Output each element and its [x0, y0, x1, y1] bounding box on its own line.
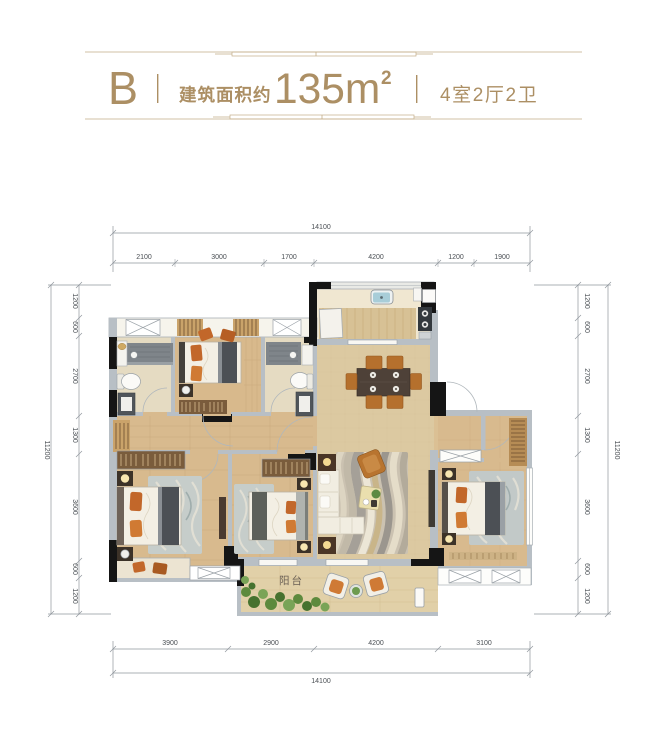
- svg-text:3000: 3000: [211, 254, 227, 261]
- svg-text:600: 600: [71, 321, 78, 333]
- svg-text:4室2厅2卫: 4室2厅2卫: [440, 84, 538, 106]
- svg-text:4200: 4200: [368, 640, 384, 647]
- svg-text:阳台: 阳台: [279, 574, 304, 587]
- svg-text:1900: 1900: [494, 254, 510, 261]
- svg-text:B: B: [108, 62, 138, 114]
- svg-text:1700: 1700: [281, 254, 297, 261]
- svg-text:1200: 1200: [71, 588, 78, 604]
- svg-text:11200: 11200: [43, 441, 50, 460]
- svg-text:600: 600: [583, 321, 590, 333]
- svg-text:2900: 2900: [263, 640, 279, 647]
- svg-text:135m: 135m: [274, 66, 380, 113]
- svg-text:建筑面积约: 建筑面积约: [179, 85, 272, 105]
- svg-text:14100: 14100: [311, 224, 331, 231]
- svg-text:2: 2: [381, 68, 392, 89]
- svg-text:1300: 1300: [71, 427, 78, 443]
- svg-text:3100: 3100: [476, 640, 492, 647]
- svg-text:600: 600: [583, 563, 590, 575]
- svg-text:3900: 3900: [162, 640, 178, 647]
- svg-text:2700: 2700: [583, 368, 590, 384]
- svg-text:3600: 3600: [71, 499, 78, 515]
- svg-text:2700: 2700: [71, 368, 78, 384]
- svg-text:3600: 3600: [583, 499, 590, 515]
- svg-text:4200: 4200: [368, 254, 384, 261]
- svg-text:1200: 1200: [448, 254, 464, 261]
- svg-text:14100: 14100: [311, 678, 331, 685]
- svg-text:1200: 1200: [583, 293, 590, 309]
- svg-text:1300: 1300: [583, 427, 590, 443]
- svg-text:11200: 11200: [613, 441, 620, 460]
- svg-text:1200: 1200: [71, 293, 78, 309]
- svg-text:600: 600: [71, 563, 78, 575]
- svg-text:2100: 2100: [136, 254, 152, 261]
- svg-text:1200: 1200: [583, 588, 590, 604]
